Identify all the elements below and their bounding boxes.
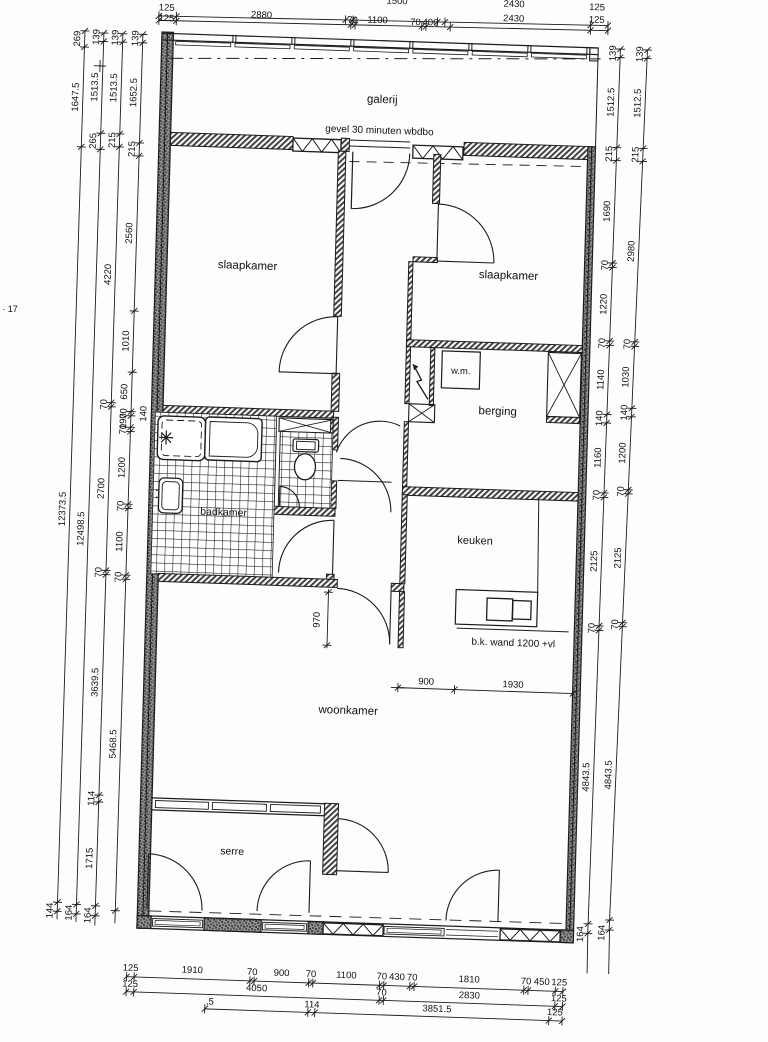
svg-text:1512.5: 1512.5 xyxy=(606,88,618,117)
svg-text:70: 70 xyxy=(115,501,126,512)
svg-text:70: 70 xyxy=(376,987,387,998)
svg-text:berging: berging xyxy=(478,405,517,418)
svg-text:139: 139 xyxy=(635,46,646,62)
svg-text:1160: 1160 xyxy=(593,447,605,468)
svg-text:215: 215 xyxy=(604,146,615,162)
svg-text:1930: 1930 xyxy=(502,679,523,691)
svg-text:1810: 1810 xyxy=(458,974,479,986)
svg-text:70: 70 xyxy=(93,567,104,578)
svg-text:450: 450 xyxy=(534,977,550,989)
svg-text:139: 139 xyxy=(91,29,102,45)
svg-text:1100: 1100 xyxy=(367,15,388,27)
svg-text:2700: 2700 xyxy=(96,478,108,500)
svg-text:144: 144 xyxy=(45,902,56,918)
svg-text:125: 125 xyxy=(589,2,605,14)
svg-text:70: 70 xyxy=(347,15,358,26)
svg-text:3639.5: 3639.5 xyxy=(90,668,102,697)
svg-text:woonkamer: woonkamer xyxy=(317,704,378,718)
svg-text:1715: 1715 xyxy=(84,848,96,870)
svg-text:164: 164 xyxy=(575,926,586,942)
svg-text:70: 70 xyxy=(247,967,258,978)
svg-text:· 17: · 17 xyxy=(2,304,18,314)
svg-text:430: 430 xyxy=(389,972,405,984)
svg-text:70: 70 xyxy=(586,623,597,634)
svg-text:4843.5: 4843.5 xyxy=(603,760,615,789)
svg-text:970: 970 xyxy=(311,612,322,628)
svg-text:1513.5: 1513.5 xyxy=(89,72,101,101)
svg-text:70: 70 xyxy=(407,972,418,983)
svg-text:70: 70 xyxy=(622,339,633,350)
svg-text:900: 900 xyxy=(418,676,434,688)
svg-text:139: 139 xyxy=(110,30,121,46)
svg-text:70: 70 xyxy=(113,571,124,582)
svg-text:2125: 2125 xyxy=(613,547,625,569)
svg-text:140: 140 xyxy=(619,404,630,420)
svg-text:215: 215 xyxy=(127,141,138,157)
svg-text:900: 900 xyxy=(273,968,289,980)
svg-text:139: 139 xyxy=(608,45,619,61)
svg-text:125: 125 xyxy=(589,14,605,26)
svg-text:215: 215 xyxy=(107,132,118,148)
svg-text:2560: 2560 xyxy=(124,222,136,244)
svg-text:1690: 1690 xyxy=(602,201,614,223)
svg-text:650: 650 xyxy=(119,384,130,400)
svg-text:1200: 1200 xyxy=(116,457,128,479)
svg-text:70: 70 xyxy=(376,971,387,982)
svg-text:1910: 1910 xyxy=(182,965,203,977)
svg-text:12373.5: 12373.5 xyxy=(57,492,69,527)
svg-text:125: 125 xyxy=(158,13,174,25)
svg-text:galerij: galerij xyxy=(367,94,398,107)
svg-text:140: 140 xyxy=(594,410,605,426)
svg-text:70: 70 xyxy=(591,490,602,501)
svg-text:2830: 2830 xyxy=(459,990,480,1002)
svg-text:1512.5: 1512.5 xyxy=(632,89,644,118)
svg-text:1200: 1200 xyxy=(617,442,629,464)
svg-text:1010: 1010 xyxy=(120,330,132,352)
svg-text:1513.5: 1513.5 xyxy=(108,73,120,102)
svg-text:114: 114 xyxy=(304,999,319,1011)
svg-text:4843.5: 4843.5 xyxy=(581,762,593,791)
svg-text:w.m.: w.m. xyxy=(450,366,471,378)
svg-text:164: 164 xyxy=(63,905,74,921)
svg-text:70: 70 xyxy=(306,969,317,980)
svg-text:1220: 1220 xyxy=(598,294,610,316)
svg-text:70: 70 xyxy=(521,976,532,987)
svg-text:5468.5: 5468.5 xyxy=(108,729,120,758)
svg-text:1100: 1100 xyxy=(336,970,357,982)
svg-text:70: 70 xyxy=(99,399,110,410)
svg-text:140: 140 xyxy=(138,406,149,422)
svg-text:125: 125 xyxy=(551,977,567,989)
svg-text:70: 70 xyxy=(616,486,627,497)
svg-text:70: 70 xyxy=(610,619,621,630)
svg-text:1140: 1140 xyxy=(595,369,607,390)
svg-text:12498.5: 12498.5 xyxy=(75,511,87,546)
svg-text:serre: serre xyxy=(220,845,244,858)
svg-text:125: 125 xyxy=(551,993,567,1005)
svg-text:164: 164 xyxy=(82,907,93,923)
svg-text:2980: 2980 xyxy=(626,240,638,262)
svg-text:1647.5: 1647.5 xyxy=(70,82,82,111)
svg-text:,5: ,5 xyxy=(206,996,214,1007)
svg-text:400: 400 xyxy=(422,17,438,29)
svg-text:slaapkamer: slaapkamer xyxy=(218,259,278,273)
svg-text:70: 70 xyxy=(600,260,611,271)
svg-text:3851.5: 3851.5 xyxy=(422,1003,451,1015)
svg-text:keuken: keuken xyxy=(457,535,493,548)
svg-text:1500: 1500 xyxy=(386,0,407,7)
svg-text:164: 164 xyxy=(596,925,607,941)
svg-text:70: 70 xyxy=(597,338,608,349)
svg-text:1100: 1100 xyxy=(114,531,126,552)
svg-text:2880: 2880 xyxy=(251,10,272,22)
svg-text:1030: 1030 xyxy=(620,366,632,388)
svg-text:70: 70 xyxy=(118,424,129,435)
svg-text:2125: 2125 xyxy=(589,550,601,572)
svg-text:1652.5: 1652.5 xyxy=(128,78,140,107)
svg-text:265: 265 xyxy=(88,133,99,149)
svg-text:215: 215 xyxy=(630,147,641,163)
svg-text:4220: 4220 xyxy=(103,264,115,286)
svg-text:125: 125 xyxy=(547,1007,563,1019)
svg-text:slaapkamer: slaapkamer xyxy=(479,269,539,283)
svg-text:125: 125 xyxy=(122,979,138,991)
svg-text:2430: 2430 xyxy=(503,13,524,25)
svg-text:125: 125 xyxy=(122,963,138,975)
svg-text:114: 114 xyxy=(86,791,97,807)
svg-text:2430: 2430 xyxy=(503,0,524,10)
svg-text:269: 269 xyxy=(72,31,83,47)
svg-text:139: 139 xyxy=(130,30,141,46)
svg-text:badkamer: badkamer xyxy=(200,506,248,520)
svg-text:70: 70 xyxy=(410,17,421,28)
svg-text:4050: 4050 xyxy=(246,983,267,995)
